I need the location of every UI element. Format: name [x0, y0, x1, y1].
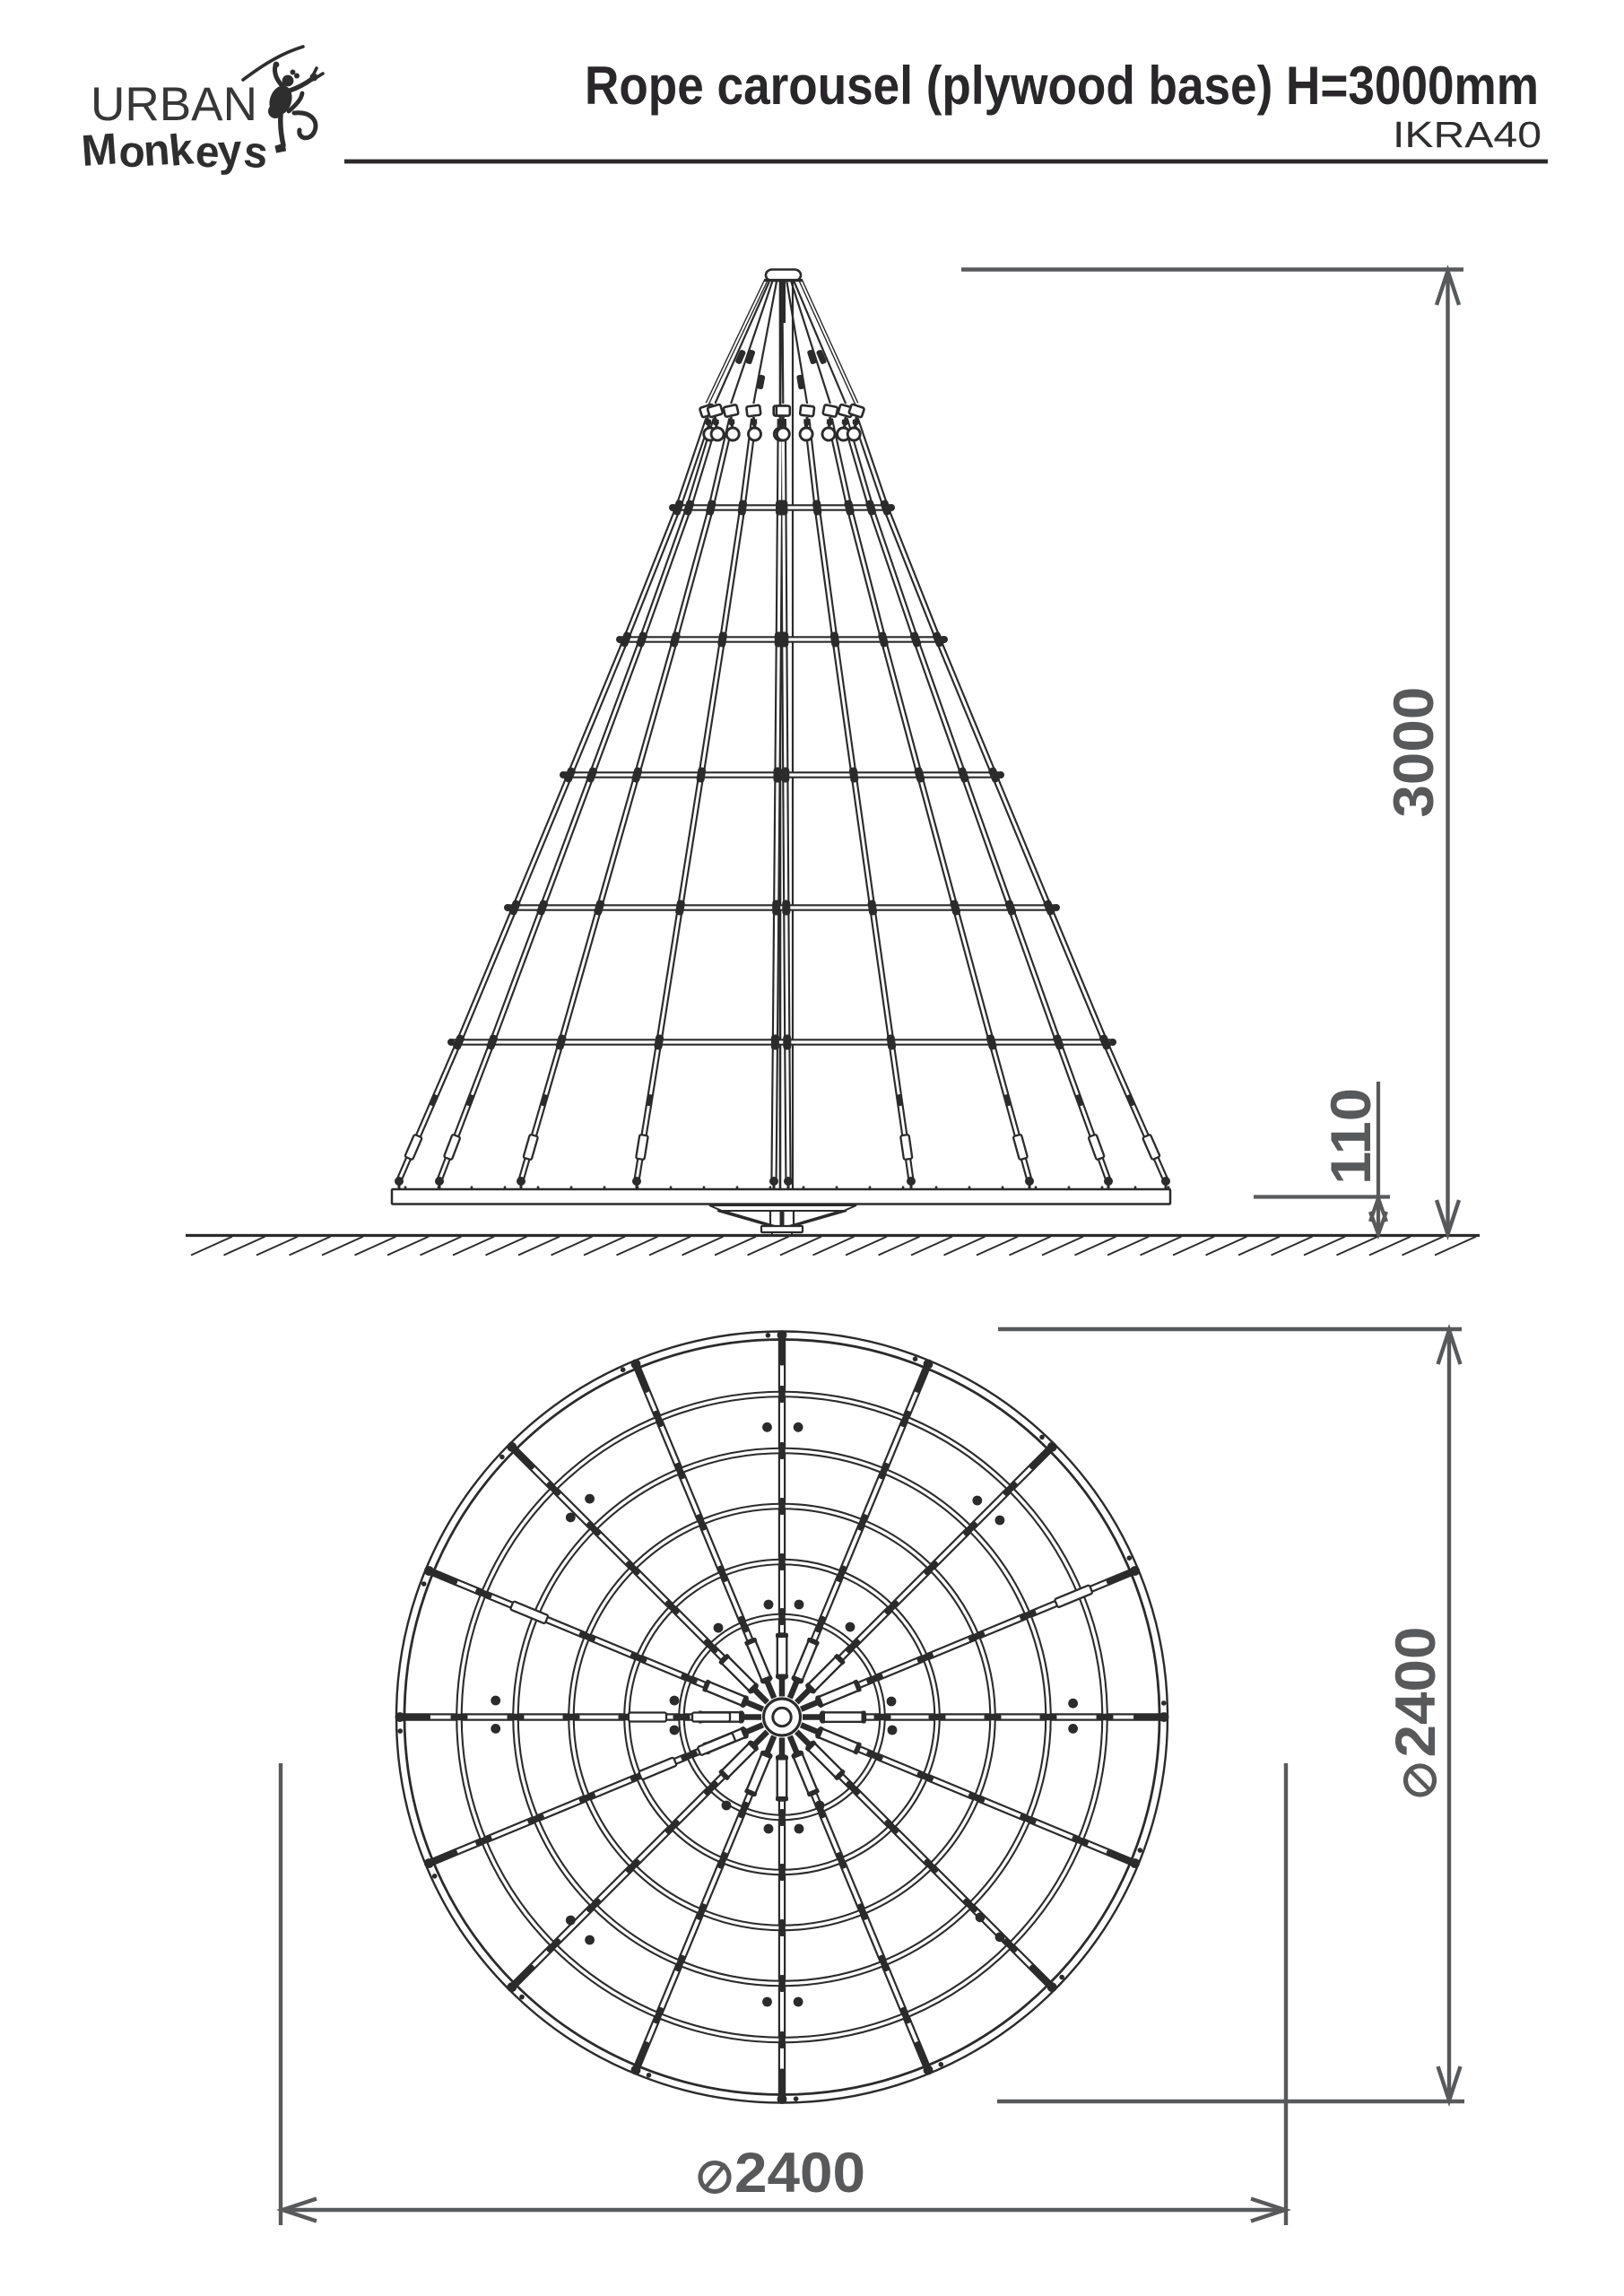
svg-text:2400: 2400 — [734, 2142, 865, 2205]
svg-text:2400: 2400 — [1385, 1627, 1447, 1758]
svg-text:110: 110 — [1320, 1088, 1383, 1185]
svg-text:IKRA40: IKRA40 — [1393, 114, 1541, 155]
svg-text:URBAN: URBAN — [91, 78, 257, 131]
svg-text:Rope carousel (plywood base) H: Rope carousel (plywood base) H=3000mm — [585, 55, 1539, 116]
svg-text:Monkeys: Monkeys — [80, 125, 270, 178]
svg-text:3000: 3000 — [1383, 687, 1446, 818]
